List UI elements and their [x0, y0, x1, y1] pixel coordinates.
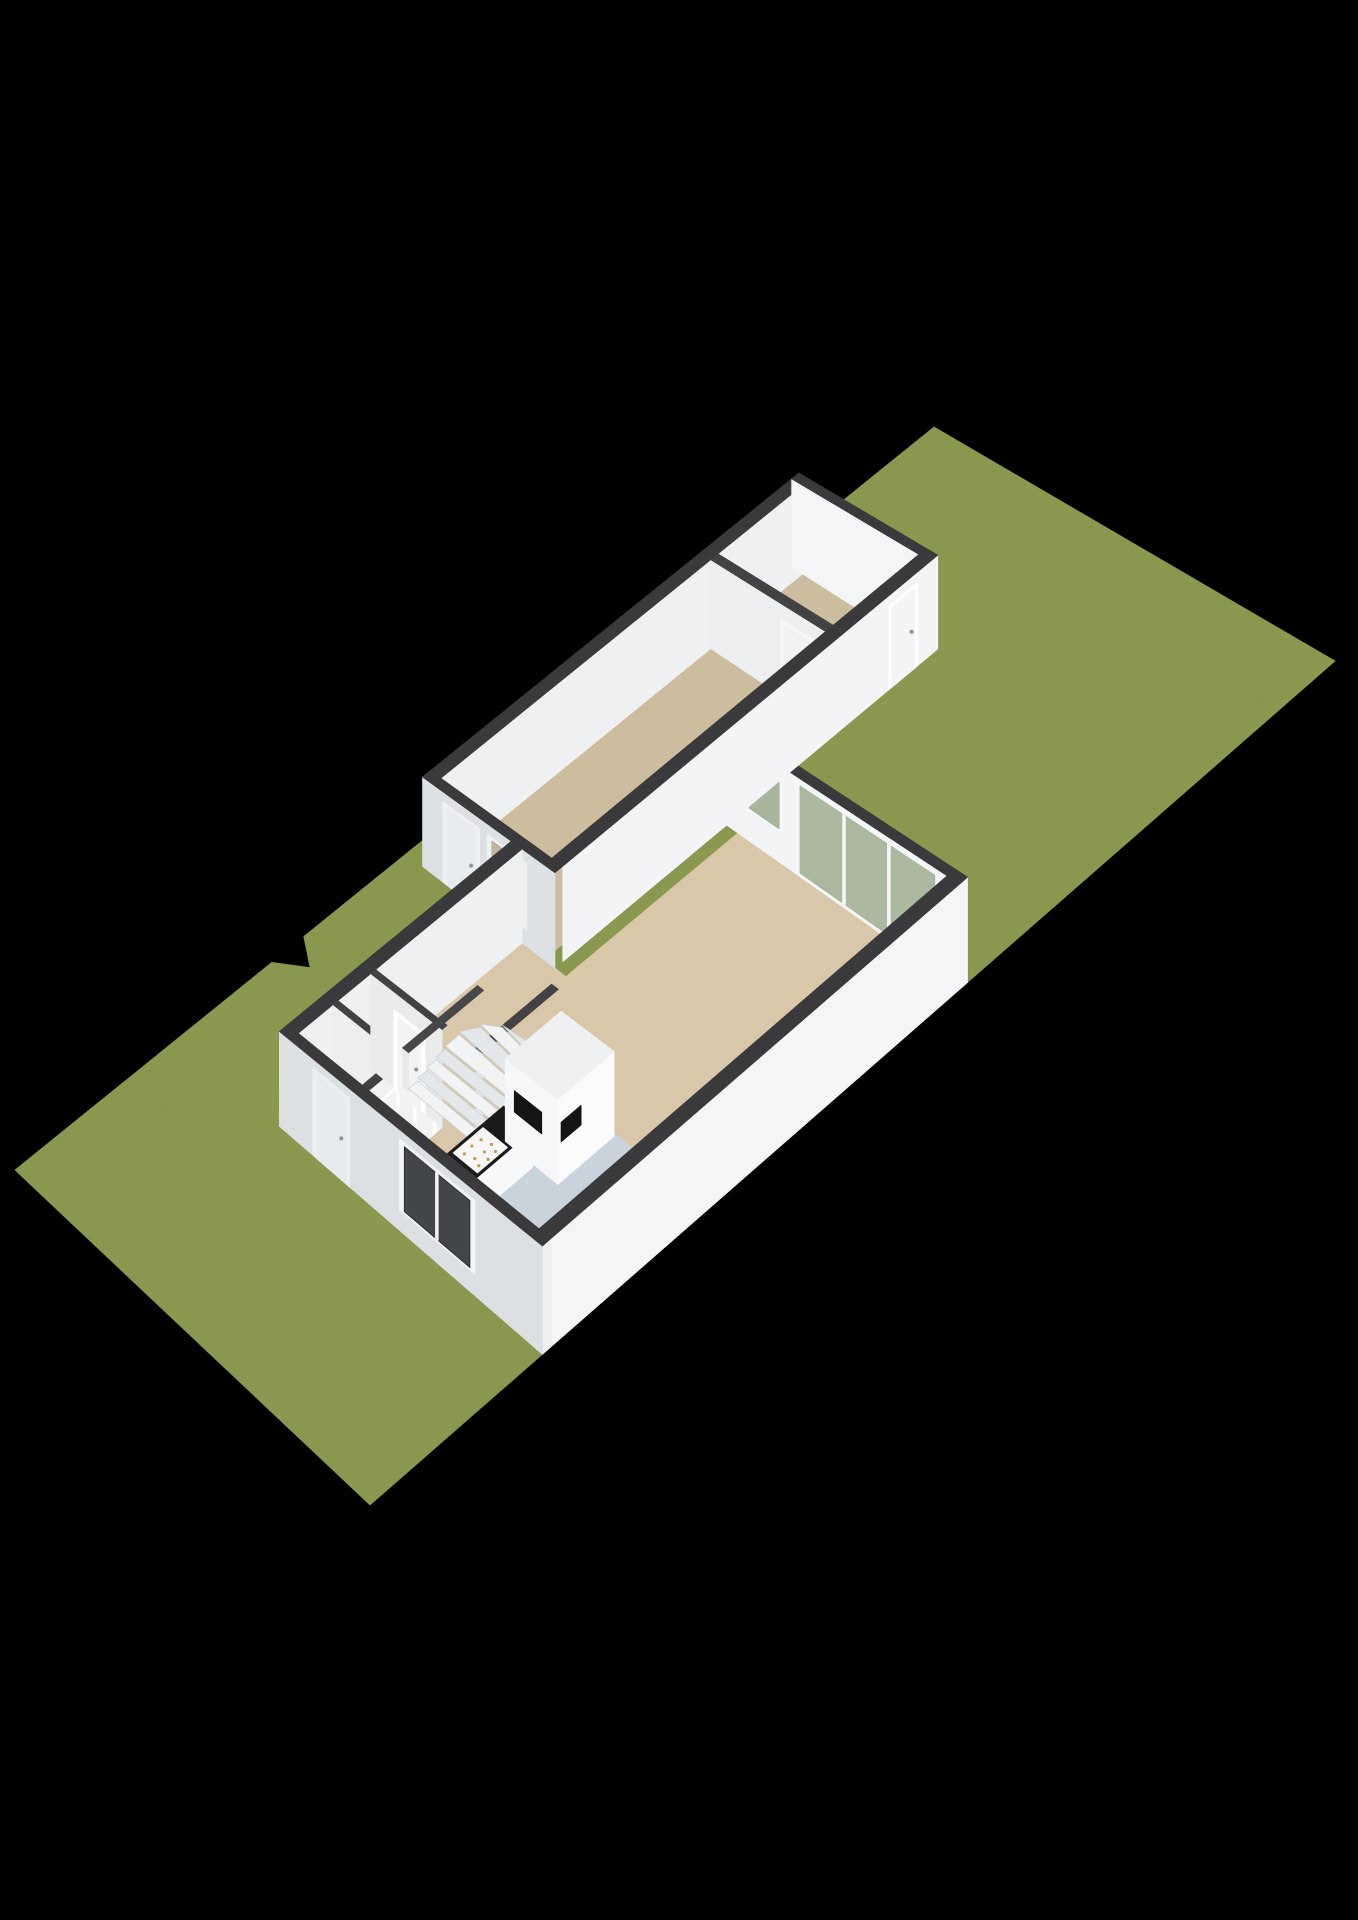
floorplan-3d-render — [0, 0, 1358, 1920]
scene-root — [0, 0, 1358, 1920]
page: { "canvas": {"width": 1358, "height": 19… — [0, 0, 1358, 1920]
scene-svg — [0, 0, 1358, 1920]
